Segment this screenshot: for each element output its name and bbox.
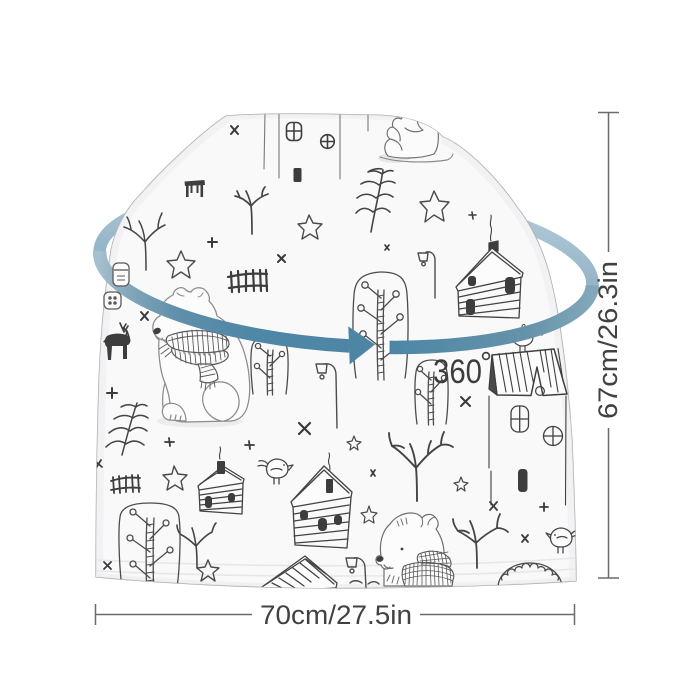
svg-text:360: 360 bbox=[433, 353, 482, 391]
svg-text:70cm/27.5in: 70cm/27.5in bbox=[260, 600, 412, 630]
svg-text:67cm/26.3in: 67cm/26.3in bbox=[593, 261, 623, 419]
